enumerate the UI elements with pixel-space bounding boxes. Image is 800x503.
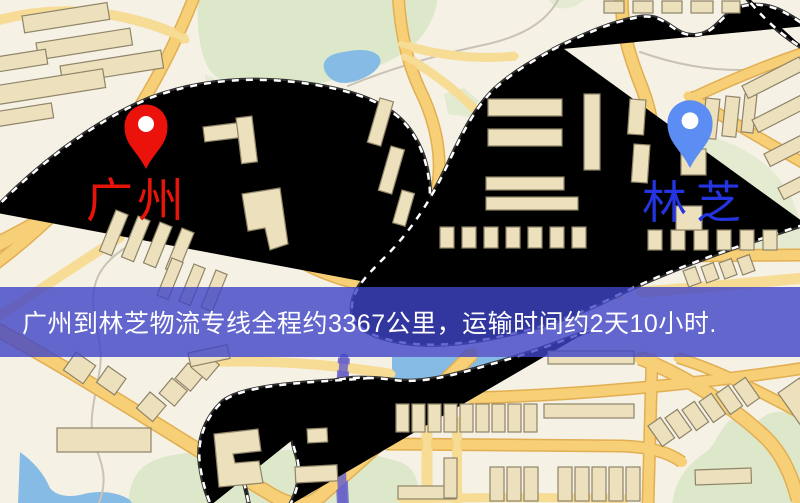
- map-canvas: 广州 林芝: [0, 0, 800, 503]
- origin-pin-hole: [138, 116, 154, 132]
- destination-pin-hole: [682, 112, 699, 129]
- river-bottom-left: [18, 452, 133, 503]
- railway-left-arc: [0, 80, 430, 288]
- map-screenshot: 广州 林芝 广州到林芝物流专线全程约3367公里，运输时间约2天10小时.: [0, 0, 800, 503]
- destination-label: 林芝: [642, 177, 750, 228]
- route-info-text: 广州到林芝物流专线全程约3367公里，运输时间约2天10小时.: [22, 304, 717, 340]
- origin-label: 广州: [86, 174, 188, 229]
- route-info-banner: 广州到林芝物流专线全程约3367公里，运输时间约2天10小时.: [0, 287, 800, 357]
